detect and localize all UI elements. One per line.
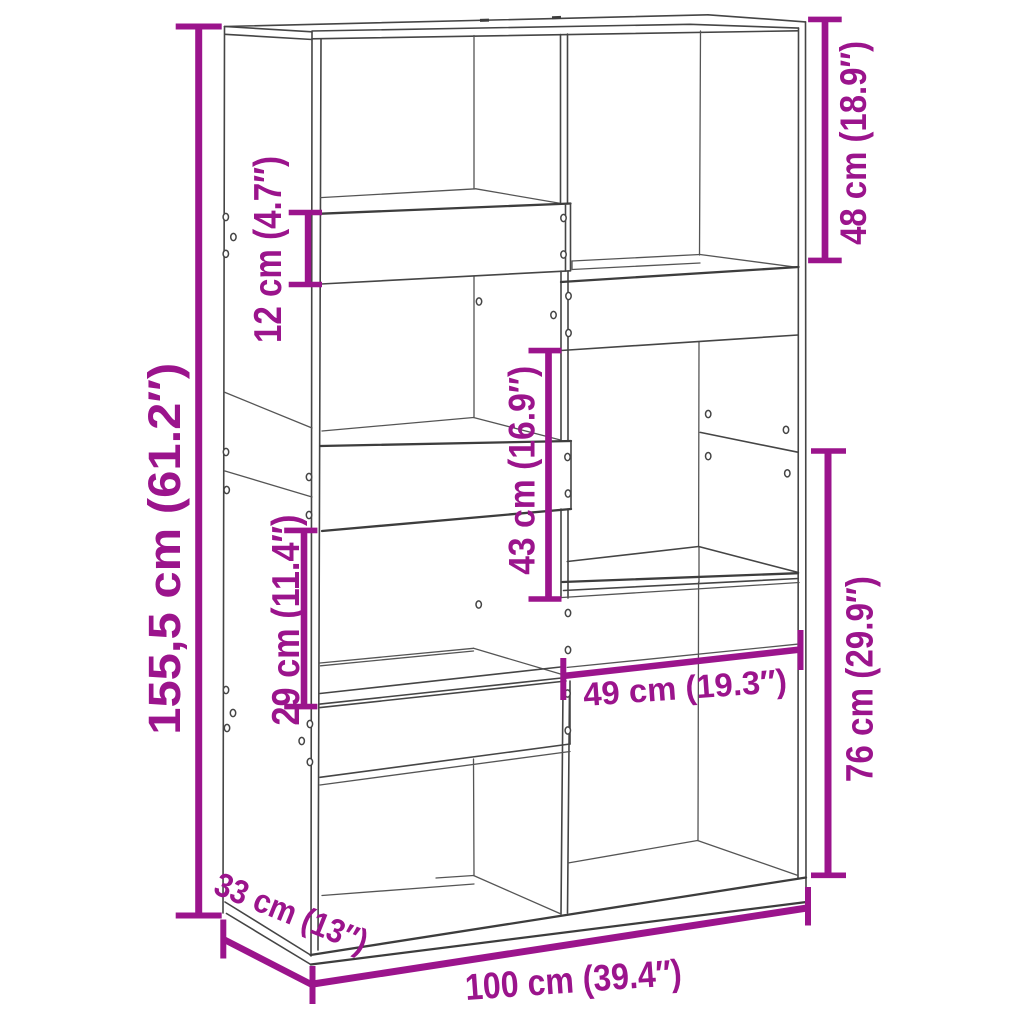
svg-text:29 cm (11.4″): 29 cm (11.4″) [265, 515, 308, 726]
svg-text:76 cm (29.9″): 76 cm (29.9″) [838, 576, 881, 782]
svg-text:48 cm (18.9″): 48 cm (18.9″) [833, 41, 874, 245]
svg-text:155,5 cm (61.2″): 155,5 cm (61.2″) [139, 363, 190, 735]
svg-text:12 cm (4.7″): 12 cm (4.7″) [247, 156, 290, 343]
svg-text:43 cm (16.9″): 43 cm (16.9″) [501, 366, 543, 575]
